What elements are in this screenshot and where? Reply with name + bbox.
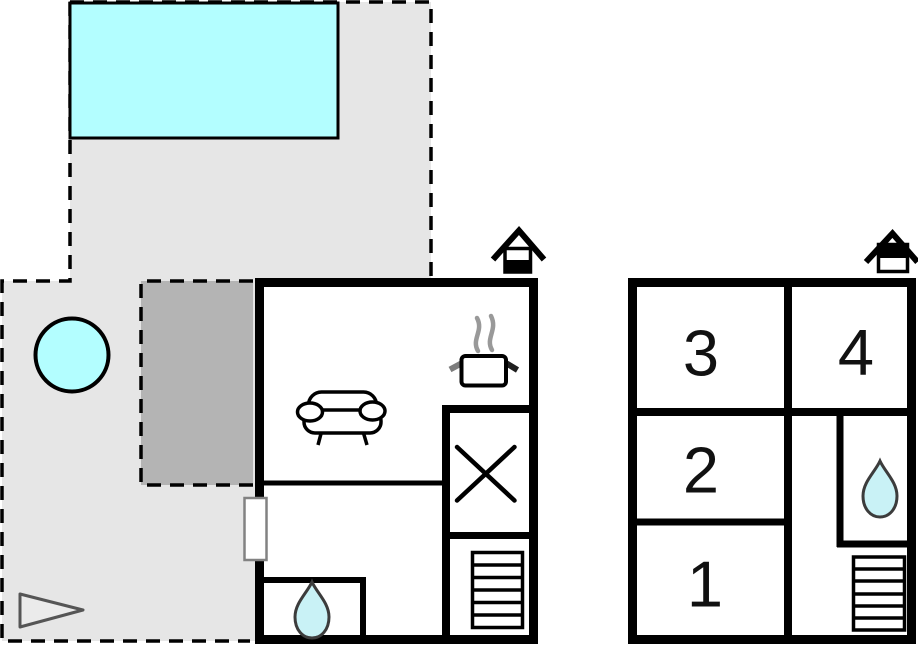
floorplan-canvas: 3 4 2 1: [0, 0, 918, 652]
ground-floor-plan: [245, 283, 534, 641]
pot-body: [462, 356, 507, 386]
upper-floor-icon: [866, 234, 918, 272]
room-label-3: 3: [683, 321, 719, 386]
room-label-2: 2: [683, 438, 719, 503]
hot-tub-icon: [36, 319, 109, 392]
sofa-armrest-left: [298, 403, 323, 421]
terrace: [141, 281, 253, 485]
ground-floor-icon-level: [505, 260, 531, 272]
ground-floor-icon: [493, 231, 544, 273]
terrace-fill: [141, 281, 253, 485]
entrance-door: [245, 498, 267, 560]
stairs-icon: [473, 553, 523, 628]
sofa-armrest-right: [360, 402, 385, 420]
floorplan-drawing: [0, 0, 918, 652]
room-label-1: 1: [687, 552, 723, 617]
stairs-icon: [854, 557, 905, 630]
room-label-4: 4: [838, 320, 874, 385]
pool: [70, 3, 338, 138]
